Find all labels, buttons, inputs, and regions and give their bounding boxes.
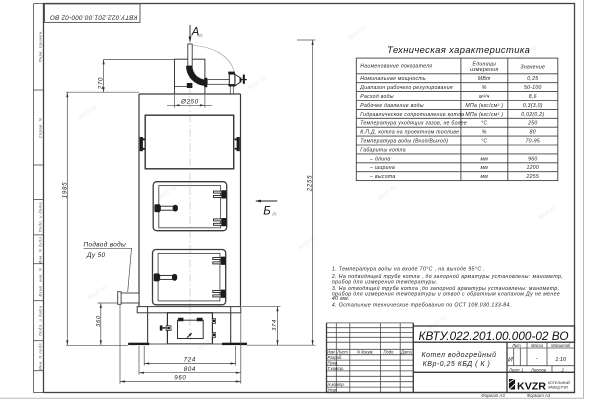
svg-text:Подп.: Подп.	[384, 350, 395, 355]
svg-text:374: 374	[272, 319, 278, 331]
svg-text:N докум.: N докум.	[357, 350, 374, 355]
svg-text:И: И	[508, 357, 513, 364]
svg-text:Номинальная мощность: Номинальная мощность	[360, 76, 426, 82]
svg-text:Листов: Листов	[530, 367, 547, 372]
svg-text:Гидравлическое сопротивление к: Гидравлическое сопротивление котла	[360, 112, 464, 118]
svg-text:Б: Б	[263, 205, 271, 217]
svg-text:ЗАВОД РЭП: ЗАВОД РЭП	[548, 386, 569, 390]
svg-text:2255: 2255	[526, 174, 540, 180]
svg-text:Ду 50: Ду 50	[86, 252, 105, 259]
svg-text:2255: 2255	[307, 175, 314, 192]
svg-text:(2): (2)	[273, 212, 277, 216]
svg-text:80: 80	[530, 130, 536, 136]
svg-text:360: 360	[96, 315, 102, 327]
svg-text:Формат А3: Формат А3	[527, 393, 551, 398]
svg-text:724: 724	[184, 357, 196, 364]
svg-text:Диапазон рабочего регулировани: Диапазон рабочего регулирования	[359, 85, 453, 91]
svg-text:Перв. примен.: Перв. примен.	[38, 30, 42, 62]
svg-text:Лист: Лист	[336, 350, 348, 355]
svg-text:1985: 1985	[61, 182, 68, 198]
svg-text:0,02(0,2): 0,02(0,2)	[521, 112, 544, 118]
svg-text:Рабочее давление воды: Рабочее давление воды	[360, 103, 424, 109]
svg-text:Изм: Изм	[327, 350, 335, 355]
svg-text:Взам. инв. N: Взам. инв. N	[38, 268, 42, 297]
svg-text:Пров.: Пров.	[328, 361, 339, 366]
svg-text:– высота: – высота	[369, 174, 396, 180]
svg-text:Формат А3: Формат А3	[481, 393, 505, 398]
svg-text:960: 960	[528, 156, 537, 162]
svg-text:Наименование показателя: Наименование показателя	[360, 64, 432, 70]
svg-text:МПа (кгс/см² ): МПа (кгс/см² )	[465, 112, 503, 118]
svg-text:м³/ч: м³/ч	[479, 94, 490, 100]
svg-text:Утв.: Утв.	[328, 388, 337, 393]
svg-text:мм: мм	[480, 165, 488, 171]
svg-text:КВТУ.022.201.00.000-02 ВО: КВТУ.022.201.00.000-02 ВО	[50, 13, 138, 20]
svg-text:Подп. и дата: Подп. и дата	[38, 306, 42, 336]
svg-text:250: 250	[527, 121, 537, 127]
svg-text:960: 960	[174, 375, 186, 382]
svg-text:°С: °С	[481, 139, 487, 145]
svg-text:1: 1	[521, 367, 523, 372]
svg-text:Котел водогрейный: Котел водогрейный	[421, 351, 496, 359]
svg-text:Разраб.: Разраб.	[328, 355, 343, 360]
svg-text:– ширина: – ширина	[369, 165, 395, 171]
svg-text:Ø250: Ø250	[180, 99, 199, 106]
svg-text:Н.контр.: Н.контр.	[328, 382, 345, 387]
svg-text:Габариты котла: Габариты котла	[360, 147, 406, 153]
svg-text:4. Остальные технические треб: 4. Остальные технические требования по О…	[332, 302, 512, 308]
svg-text:1200: 1200	[527, 165, 540, 171]
svg-text:КВр-0,25 КБД ( К ): КВр-0,25 КБД ( К )	[423, 361, 491, 368]
svg-text:70-95: 70-95	[526, 139, 541, 145]
svg-text:Масса: Масса	[531, 343, 544, 348]
svg-text:Расход воды: Расход воды	[360, 94, 394, 100]
svg-text:КВТУ.022.201.00.000-02 ВО: КВТУ.022.201.00.000-02 ВО	[419, 329, 569, 343]
svg-text:-: -	[536, 357, 538, 363]
svg-text:Дата: Дата	[400, 350, 413, 355]
svg-text:0,3(3,0): 0,3(3,0)	[523, 103, 543, 109]
svg-text:Инв. N дубл.: Инв. N дубл.	[38, 235, 42, 264]
svg-text:МВт: МВт	[478, 76, 491, 82]
svg-text:Температура уходящих газов, не: Температура уходящих газов, не более	[360, 121, 467, 127]
svg-text:804: 804	[184, 366, 196, 373]
svg-text:%: %	[482, 130, 487, 136]
svg-text:К.П.Д. котла на проектном топл: К.П.Д. котла на проектном топливе	[360, 130, 459, 136]
svg-text:Масштаб: Масштаб	[551, 343, 571, 348]
svg-text:Подп. и дата: Подп. и дата	[38, 202, 42, 232]
svg-text:КОТЕЛЬНЫЙ: КОТЕЛЬНЫЙ	[548, 381, 570, 385]
svg-text:Лист: Лист	[508, 367, 520, 372]
svg-text:мм: мм	[480, 174, 488, 180]
svg-text:KVZR: KVZR	[517, 380, 546, 392]
svg-text:мм: мм	[480, 156, 488, 162]
svg-text:– длина: – длина	[369, 156, 391, 162]
svg-text:прибор для измерения температу: прибор для измерения температуры.	[332, 279, 438, 285]
svg-text:Т.контр.: Т.контр.	[328, 366, 345, 371]
svg-text:Подвод воды: Подвод воды	[84, 240, 127, 248]
svg-text:%: %	[482, 85, 487, 91]
svg-text:°С: °С	[481, 121, 487, 127]
svg-text:50-100: 50-100	[524, 85, 542, 91]
svg-text:прибор для измерения температу: прибор для измерения температуры и отвод…	[332, 291, 560, 297]
svg-text:0,25: 0,25	[527, 76, 538, 82]
svg-text:Техническая характеристика: Техническая характеристика	[387, 44, 530, 55]
svg-text:Температура воды (Вход/Выход): Температура воды (Вход/Выход)	[360, 139, 448, 145]
svg-text:(2): (2)	[199, 34, 203, 38]
svg-text:40 мм.: 40 мм.	[332, 296, 350, 302]
svg-text:8,6: 8,6	[529, 94, 537, 100]
svg-text:Инв. N подл.: Инв. N подл.	[38, 341, 42, 370]
svg-text:270: 270	[98, 77, 105, 90]
svg-text:Справ. N: Справ. N	[38, 118, 42, 138]
svg-text:МПа (кгс/см² ): МПа (кгс/см² )	[465, 103, 503, 109]
svg-text:1. Температура воды на входе: 1. Температура воды на входе 70°С , на в…	[332, 267, 485, 273]
svg-text:Лит.: Лит.	[511, 343, 522, 348]
svg-text:измерения: измерения	[470, 67, 498, 73]
svg-text:1:10: 1:10	[555, 357, 567, 363]
svg-text:Значение: Значение	[520, 64, 545, 70]
